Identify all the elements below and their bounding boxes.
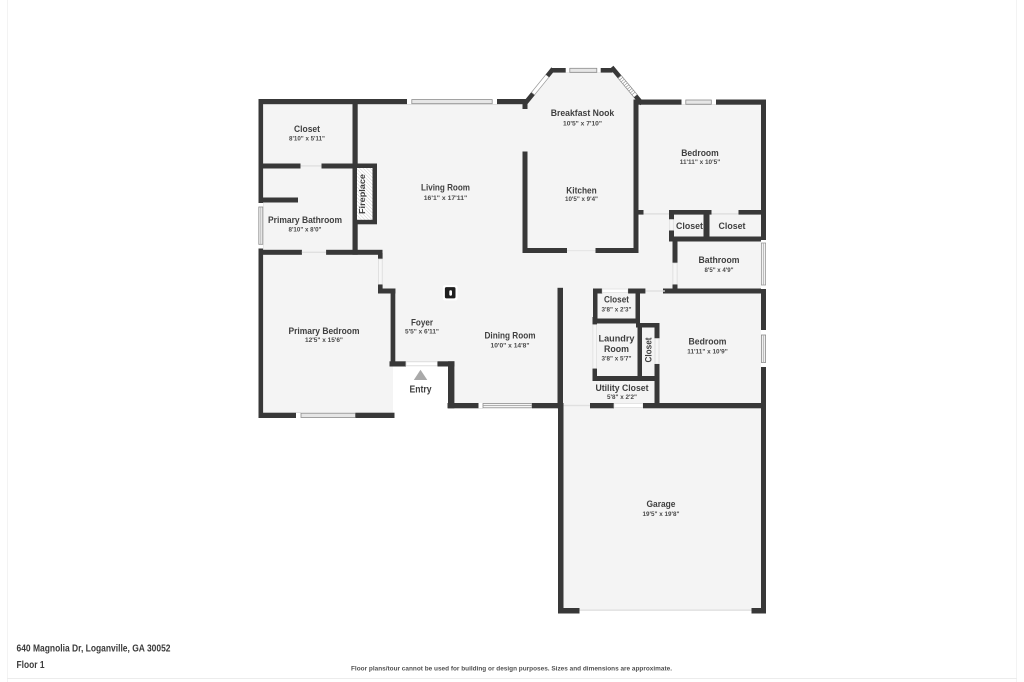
svg-text:11'11" x 10'9": 11'11" x 10'9" <box>687 348 728 355</box>
svg-text:8'10" x 5'11": 8'10" x 5'11" <box>289 135 325 142</box>
svg-text:Primary Bedroom: Primary Bedroom <box>289 326 360 336</box>
svg-text:Closet: Closet <box>604 295 629 305</box>
svg-text:Closet: Closet <box>719 221 746 231</box>
svg-text:Living Room: Living Room <box>421 183 470 193</box>
svg-text:Utility Closet: Utility Closet <box>596 383 649 393</box>
svg-text:3'8" x 2'3": 3'8" x 2'3" <box>602 307 632 314</box>
svg-text:Kitchen: Kitchen <box>566 185 597 195</box>
svg-text:Dining Room: Dining Room <box>485 331 536 341</box>
svg-text:5'5" x 6'11": 5'5" x 6'11" <box>405 329 439 336</box>
svg-text:Bathroom: Bathroom <box>699 255 740 265</box>
svg-text:Closet: Closet <box>643 337 653 362</box>
svg-text:8'5" x 4'9": 8'5" x 4'9" <box>705 267 734 274</box>
svg-text:Breakfast Nook: Breakfast Nook <box>551 108 615 118</box>
svg-text:10'5" x 7'10": 10'5" x 7'10" <box>563 121 602 128</box>
svg-text:Foyer: Foyer <box>411 317 434 327</box>
svg-text:Room: Room <box>604 344 629 354</box>
svg-text:Floor 1: Floor 1 <box>17 659 45 671</box>
svg-text:16'1" x 17'11": 16'1" x 17'11" <box>424 195 468 202</box>
svg-text:Closet: Closet <box>676 221 703 231</box>
svg-text:Laundry: Laundry <box>599 334 635 344</box>
svg-text:12'5" x 15'6": 12'5" x 15'6" <box>305 337 343 344</box>
svg-text:Bedroom: Bedroom <box>681 148 719 158</box>
svg-text:10'0" x 14'8": 10'0" x 14'8" <box>491 343 530 350</box>
svg-text:Garage: Garage <box>647 499 676 509</box>
svg-text:Fireplace: Fireplace <box>358 173 367 214</box>
svg-text:640 Magnolia Dr, Loganville, G: 640 Magnolia Dr, Loganville, GA 30052 <box>17 643 171 655</box>
svg-text:10'5" x 9'4": 10'5" x 9'4" <box>565 196 598 203</box>
svg-text:11'11" x 10'5": 11'11" x 10'5" <box>680 159 721 166</box>
svg-text:Entry: Entry <box>410 385 432 396</box>
svg-text:3'8" x 5'7": 3'8" x 5'7" <box>602 356 632 363</box>
svg-text:5'8" x 2'2": 5'8" x 2'2" <box>607 394 637 401</box>
svg-text:Floor plans/tour cannot be use: Floor plans/tour cannot be used for buil… <box>351 665 672 672</box>
svg-text:8'10" x 8'0": 8'10" x 8'0" <box>289 226 322 233</box>
svg-text:Closet: Closet <box>294 124 320 134</box>
svg-text:Primary Bathroom: Primary Bathroom <box>268 215 342 225</box>
svg-text:19'5" x 19'8": 19'5" x 19'8" <box>643 511 680 518</box>
svg-text:Bedroom: Bedroom <box>689 336 727 346</box>
